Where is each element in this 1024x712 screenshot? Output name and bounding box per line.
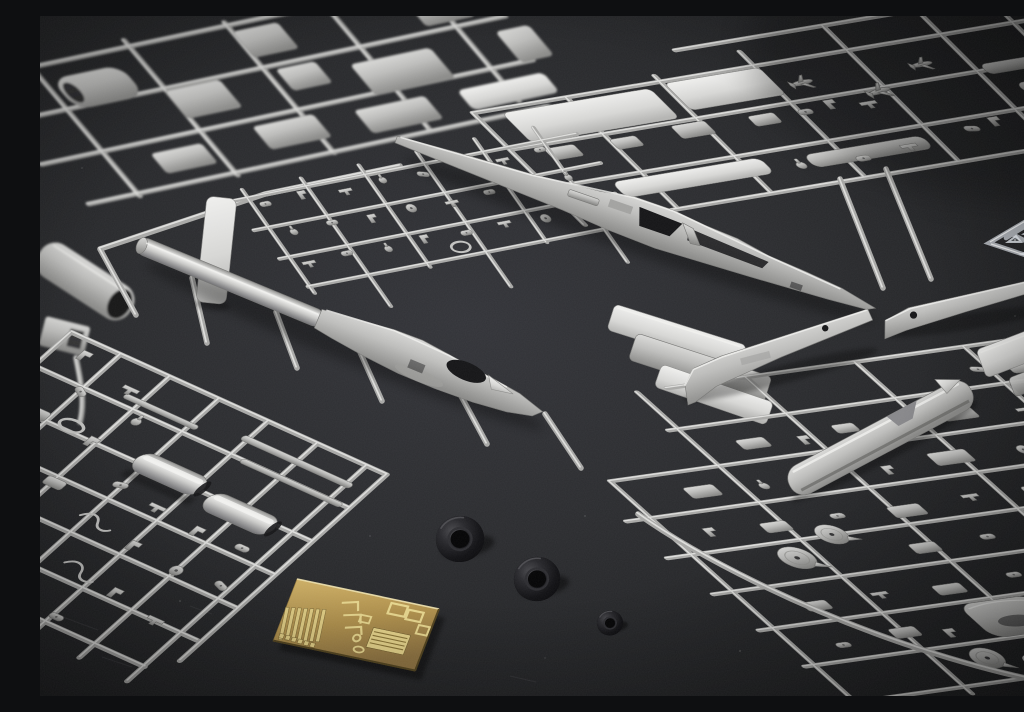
lighting-overlays	[40, 16, 1024, 696]
film-grain-overlay	[40, 16, 1024, 696]
kit-sprues-photo	[40, 16, 1024, 696]
model-kit-photo	[40, 16, 1024, 696]
